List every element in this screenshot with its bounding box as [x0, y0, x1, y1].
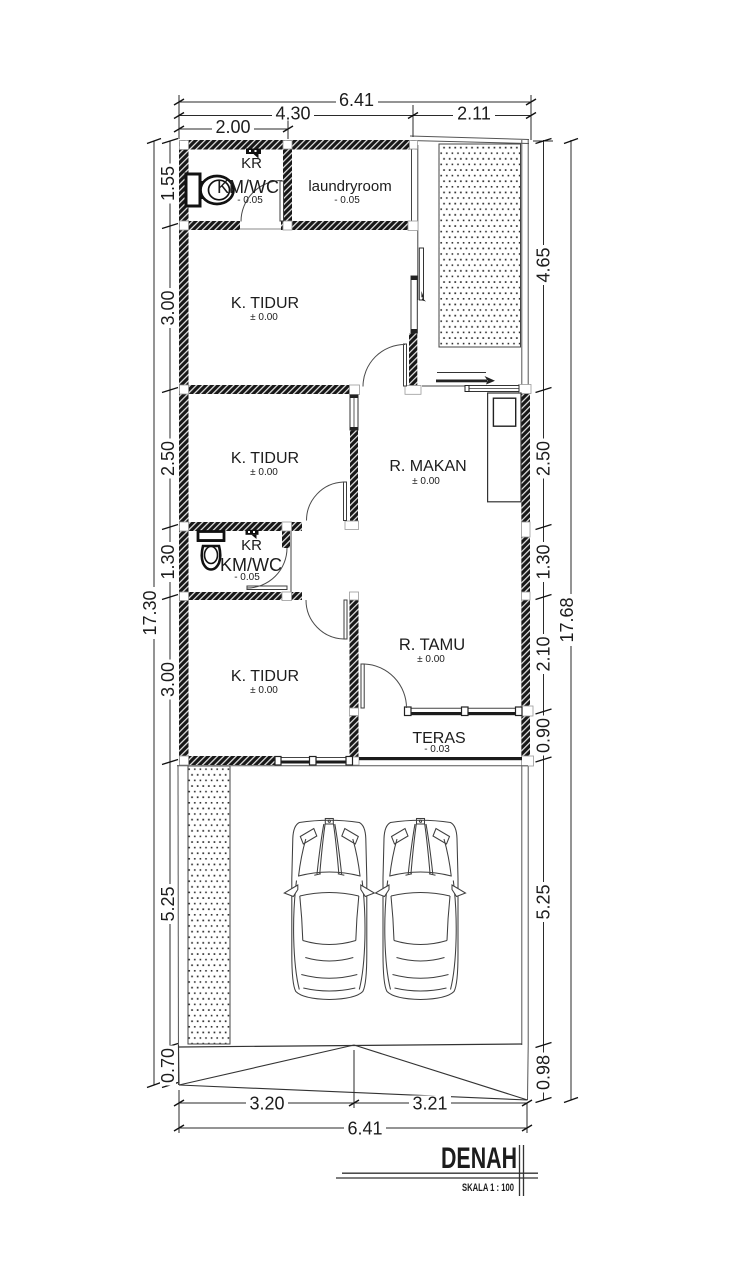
svg-text:KR: KR	[241, 537, 262, 554]
svg-text:1.30: 1.30	[158, 544, 178, 579]
svg-text:- 0.05: - 0.05	[237, 195, 263, 206]
svg-text:R. MAKAN: R. MAKAN	[389, 458, 466, 475]
svg-text:- 0.05: - 0.05	[234, 572, 260, 583]
svg-text:K. TIDUR: K. TIDUR	[231, 668, 299, 685]
svg-text:3.00: 3.00	[158, 662, 178, 697]
svg-text:± 0.00: ± 0.00	[250, 312, 278, 323]
svg-text:4.65: 4.65	[534, 247, 554, 282]
svg-text:KR: KR	[241, 155, 262, 172]
svg-text:K. TIDUR: K. TIDUR	[231, 295, 299, 312]
svg-text:K. TIDUR: K. TIDUR	[231, 450, 299, 467]
svg-text:3.00: 3.00	[158, 290, 178, 325]
svg-text:SKALA 1 : 100: SKALA 1 : 100	[462, 1182, 514, 1194]
svg-text:- 0.05: - 0.05	[334, 195, 360, 206]
svg-text:2.00: 2.00	[215, 117, 250, 137]
svg-text:3.20: 3.20	[249, 1094, 284, 1114]
svg-text:- 0.03: - 0.03	[424, 744, 450, 755]
svg-text:± 0.00: ± 0.00	[250, 467, 278, 478]
svg-text:1.30: 1.30	[534, 544, 554, 579]
svg-text:6.41: 6.41	[339, 90, 374, 110]
svg-text:17.30: 17.30	[140, 590, 160, 635]
svg-text:KM/WC: KM/WC	[217, 177, 279, 197]
svg-text:2.11: 2.11	[457, 104, 491, 124]
svg-text:0.70: 0.70	[158, 1048, 178, 1083]
svg-text:3.21: 3.21	[412, 1094, 447, 1114]
svg-text:0.98: 0.98	[534, 1055, 554, 1090]
svg-text:6.41: 6.41	[347, 1119, 382, 1139]
svg-text:± 0.00: ± 0.00	[250, 685, 278, 696]
svg-text:± 0.00: ± 0.00	[412, 476, 440, 487]
svg-text:0.90: 0.90	[534, 718, 554, 753]
svg-text:17.68: 17.68	[557, 597, 577, 642]
svg-text:2.50: 2.50	[534, 441, 554, 476]
svg-text:R. TAMU: R. TAMU	[399, 636, 465, 654]
svg-text:laundryroom: laundryroom	[308, 178, 391, 195]
svg-text:1.55: 1.55	[158, 166, 178, 201]
svg-text:5.25: 5.25	[534, 884, 554, 919]
svg-text:4.30: 4.30	[275, 104, 310, 124]
svg-text:DENAH: DENAH	[441, 1142, 517, 1175]
svg-text:5.25: 5.25	[158, 886, 178, 921]
svg-text:± 0.00: ± 0.00	[417, 654, 445, 665]
svg-text:2.10: 2.10	[534, 636, 554, 671]
svg-text:2.50: 2.50	[158, 441, 178, 476]
